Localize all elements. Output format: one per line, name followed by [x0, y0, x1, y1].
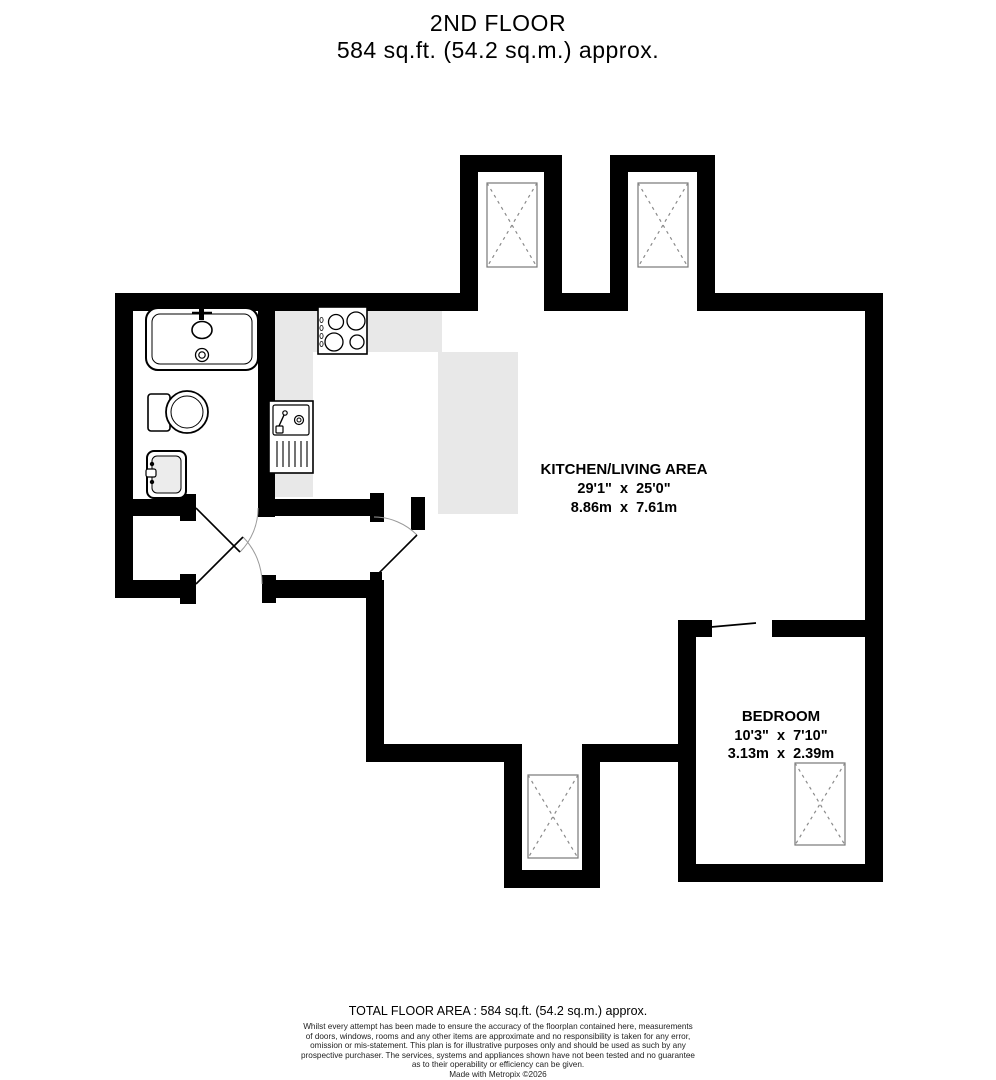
wall-segment: [678, 620, 696, 882]
door-leaf: [196, 537, 243, 584]
disclaimer: Whilst every attempt has been made to en…: [0, 1022, 996, 1080]
doors: [196, 508, 756, 627]
credit-line: Made with Metropix ©2026: [0, 1070, 996, 1080]
hob-knob: [320, 317, 323, 322]
wall-segment: [562, 293, 610, 311]
bathroom-door: [196, 508, 258, 552]
room-size-imperial: 29'1" x 25'0": [577, 481, 670, 497]
wall-segment: [678, 620, 712, 637]
bath-drain: [199, 352, 205, 358]
wall-segment: [133, 499, 181, 516]
room-size-metric: 8.86m x 7.61m: [571, 500, 677, 516]
wall-segment: [366, 580, 384, 762]
toilet: [148, 391, 208, 433]
wall-end-cap: [180, 574, 196, 604]
wall-segment: [115, 293, 133, 598]
hob-knob: [320, 341, 323, 346]
wall-segment: [678, 864, 883, 882]
room-size-imperial: 10'3" x 7'10": [734, 728, 827, 744]
toilet-bowl: [171, 396, 203, 428]
bathroom-fixtures: [146, 306, 258, 498]
living-area-door: [374, 517, 417, 578]
room-size-metric: 3.13m x 2.39m: [728, 746, 834, 762]
room-name: BEDROOM: [742, 708, 820, 725]
hand-basin: [146, 451, 186, 498]
wall-segment: [772, 620, 865, 637]
skylight-window: [528, 775, 578, 858]
floorplan-drawing: KITCHEN/LIVING AREA 29'1" x 25'0" 8.86m …: [0, 0, 996, 1080]
hob-burner: [329, 315, 344, 330]
door-leaf: [196, 508, 240, 552]
hob-burner: [350, 335, 364, 349]
kitchen-sink: [269, 401, 313, 473]
skylight-window: [795, 763, 845, 845]
wall-segment: [460, 155, 478, 311]
disclaimer-line: Whilst every attempt has been made to en…: [0, 1022, 996, 1032]
door-leaf: [374, 535, 417, 578]
entry-door: [196, 537, 262, 584]
disclaimer-line: prospective purchaser. The services, sys…: [0, 1051, 996, 1061]
hob: [318, 307, 367, 354]
kitchen-counter: [438, 352, 518, 514]
wall-segment: [544, 155, 562, 311]
wall-segment: [715, 293, 883, 311]
wall-segment: [258, 499, 378, 516]
disclaimer-line: of doors, windows, rooms and any other i…: [0, 1032, 996, 1042]
hob-burner: [325, 333, 343, 351]
hob-knob: [320, 333, 323, 338]
wall-segment: [366, 744, 522, 762]
door-leaf: [711, 623, 756, 627]
wall-segment: [610, 155, 628, 311]
basin-tap: [150, 480, 154, 484]
basin-tap: [150, 462, 154, 466]
wall-segment: [504, 744, 522, 888]
door-swing-arc: [240, 508, 258, 552]
room-name: KITCHEN/LIVING AREA: [541, 461, 708, 478]
floorplan-page: 2ND FLOOR 584 sq.ft. (54.2 sq.m.) approx…: [0, 0, 996, 1080]
sink-drain: [297, 418, 301, 422]
total-floor-area: TOTAL FLOOR AREA : 584 sq.ft. (54.2 sq.m…: [0, 1004, 996, 1018]
bedroom-door: [711, 623, 756, 627]
door-swing-arc: [243, 537, 262, 584]
plan-footer: TOTAL FLOOR AREA : 584 sq.ft. (54.2 sq.m…: [0, 1004, 996, 1080]
wall-segment: [865, 293, 883, 882]
wall-end-cap: [262, 575, 276, 603]
bathtub: [146, 306, 258, 370]
hob-knob: [320, 325, 323, 330]
sink-tap: [283, 411, 287, 415]
bath-tap-head: [192, 322, 212, 339]
skylight-window: [487, 183, 537, 267]
basin-spout: [146, 469, 156, 477]
wall-end-cap: [411, 497, 425, 530]
wall-segment: [262, 580, 384, 598]
wall-segment: [582, 744, 600, 888]
disclaimer-line: as to their operability or efficiency ca…: [0, 1060, 996, 1070]
sink-tap: [276, 426, 283, 433]
wall-segment: [697, 155, 715, 311]
skylight-window: [638, 183, 688, 267]
hob-burner: [347, 312, 365, 330]
disclaimer-line: omission or mis-statement. This plan is …: [0, 1041, 996, 1051]
